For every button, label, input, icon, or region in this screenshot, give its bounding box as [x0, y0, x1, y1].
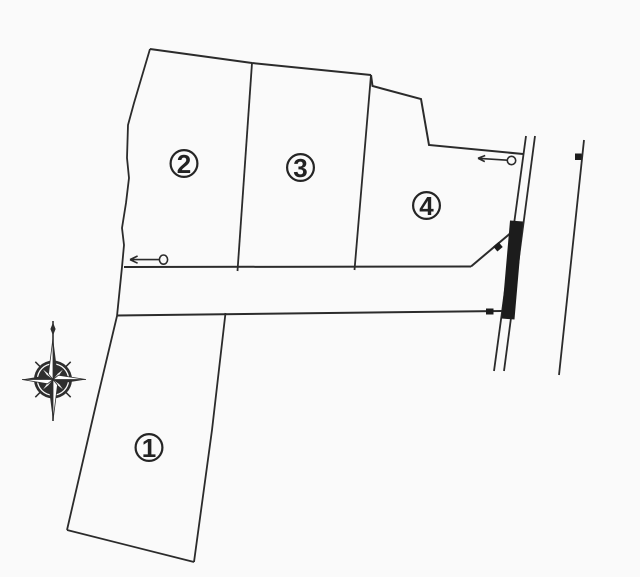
- svg-text:1: 1: [142, 433, 156, 463]
- svg-text:2: 2: [177, 149, 191, 179]
- svg-text:3: 3: [293, 153, 307, 183]
- svg-text:4: 4: [419, 191, 434, 221]
